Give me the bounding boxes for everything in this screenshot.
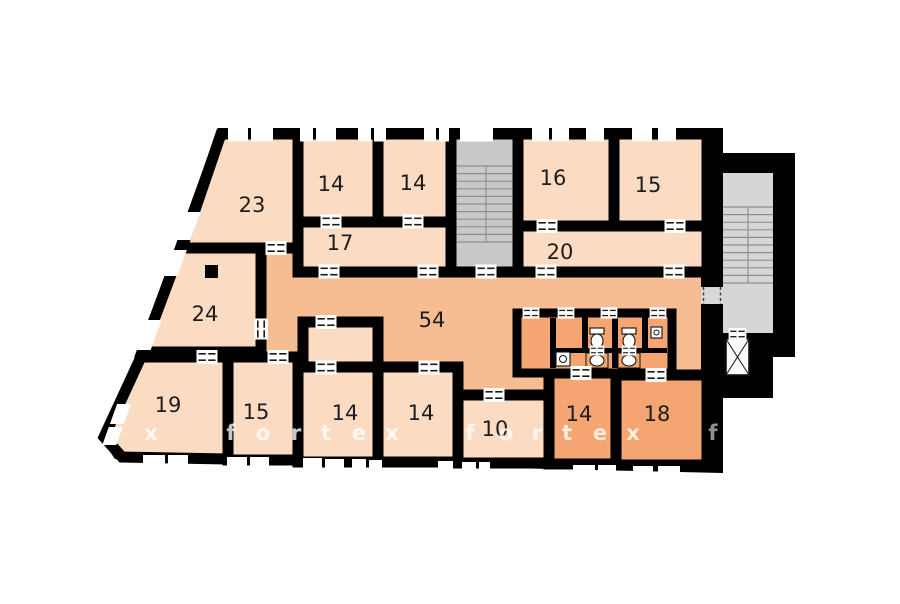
window bbox=[358, 128, 371, 142]
window bbox=[250, 457, 269, 471]
watermark-letter: r bbox=[291, 421, 302, 445]
main-stair-shaft bbox=[451, 134, 518, 272]
window bbox=[460, 128, 493, 142]
door-symbol bbox=[523, 307, 540, 318]
door-symbol bbox=[419, 361, 440, 375]
washbasin-icon bbox=[556, 352, 570, 366]
column bbox=[205, 265, 218, 278]
watermark-letter: f bbox=[465, 421, 475, 445]
window bbox=[143, 455, 165, 469]
door-symbol bbox=[266, 241, 287, 255]
wc-partition bbox=[550, 318, 556, 368]
window bbox=[479, 462, 490, 476]
door-symbol bbox=[197, 350, 218, 364]
watermark-letter: t bbox=[321, 421, 331, 445]
window bbox=[168, 455, 188, 469]
room-label-16: 16 bbox=[540, 166, 567, 190]
door-symbol bbox=[665, 219, 686, 233]
room-label-14a: 14 bbox=[318, 172, 345, 196]
room-label-54: 54 bbox=[419, 308, 446, 332]
window bbox=[316, 128, 336, 142]
window bbox=[532, 128, 549, 142]
room-label-14b: 14 bbox=[400, 171, 427, 195]
watermark-letter: o bbox=[499, 421, 513, 445]
window bbox=[598, 465, 616, 478]
door-symbol bbox=[319, 265, 340, 279]
window bbox=[325, 459, 344, 473]
window bbox=[352, 459, 366, 473]
window bbox=[438, 461, 453, 475]
window bbox=[552, 128, 569, 142]
room-label-18: 18 bbox=[644, 402, 671, 426]
window bbox=[303, 458, 322, 472]
door-symbol bbox=[558, 307, 575, 318]
door-symbol bbox=[484, 388, 505, 402]
window bbox=[300, 128, 313, 142]
wc-partition bbox=[642, 313, 648, 350]
window bbox=[658, 128, 676, 142]
vestibule bbox=[303, 322, 378, 367]
window bbox=[374, 128, 386, 142]
watermark-letter: t bbox=[562, 421, 572, 445]
watermark-letter: x bbox=[144, 421, 158, 445]
door-symbol bbox=[601, 307, 618, 318]
door-symbol bbox=[316, 315, 337, 329]
annex-passage bbox=[701, 287, 723, 304]
door-symbol bbox=[476, 265, 497, 279]
room-24 bbox=[142, 248, 261, 352]
toilet-icon bbox=[622, 328, 636, 348]
floor-plan-drawing: 23 14 14 16 15 17 20 24 54 19 15 14 14 1… bbox=[0, 0, 900, 604]
window bbox=[369, 460, 382, 474]
window bbox=[633, 466, 653, 479]
watermark-letter: x bbox=[385, 421, 399, 445]
room-label-24: 24 bbox=[192, 302, 219, 326]
door-symbol bbox=[622, 346, 637, 356]
door-symbol bbox=[646, 368, 667, 382]
elevator-door-symbol bbox=[729, 328, 747, 340]
toilet-icon bbox=[590, 328, 604, 348]
floor-plan-page: 23 14 14 16 15 17 20 24 54 19 15 14 14 1… bbox=[0, 0, 900, 604]
window bbox=[228, 128, 248, 142]
watermark-letter: x bbox=[626, 421, 640, 445]
window bbox=[658, 466, 680, 479]
watermark-letter: e bbox=[352, 421, 366, 445]
door-symbol bbox=[321, 215, 342, 229]
window bbox=[439, 128, 449, 142]
window bbox=[227, 457, 247, 471]
watermark-letter: o bbox=[256, 421, 270, 445]
elevator-icon bbox=[726, 339, 749, 375]
watermark-letter: r bbox=[532, 421, 543, 445]
room-label-19: 19 bbox=[155, 393, 182, 417]
door-symbol bbox=[590, 346, 605, 356]
room-label-15: 15 bbox=[635, 173, 662, 197]
window bbox=[586, 128, 604, 142]
window bbox=[251, 128, 273, 142]
window bbox=[462, 462, 476, 476]
watermark-letter: f bbox=[226, 421, 236, 445]
room-label-17: 17 bbox=[327, 231, 354, 255]
room-label-20: 20 bbox=[547, 240, 574, 264]
watermark-letter: f bbox=[708, 421, 718, 445]
door-symbol bbox=[268, 350, 289, 364]
door-symbol bbox=[571, 366, 592, 380]
door-symbol bbox=[536, 265, 557, 279]
door-symbol bbox=[664, 265, 685, 279]
window bbox=[632, 128, 652, 142]
door-symbol bbox=[650, 307, 667, 318]
hand-basin-icon bbox=[651, 327, 662, 338]
door-symbol bbox=[316, 361, 337, 375]
door-symbol bbox=[403, 215, 424, 229]
wc-partition bbox=[582, 313, 588, 350]
window bbox=[573, 465, 595, 478]
watermark-letter: e bbox=[593, 421, 607, 445]
wc-partition bbox=[612, 313, 618, 368]
door-symbol bbox=[418, 265, 439, 279]
window bbox=[424, 128, 436, 142]
door-symbol bbox=[254, 319, 268, 340]
room-label-14d: 14 bbox=[408, 401, 435, 425]
door-symbol bbox=[537, 219, 558, 233]
room-23 bbox=[182, 134, 298, 248]
room-label-23: 23 bbox=[239, 193, 266, 217]
